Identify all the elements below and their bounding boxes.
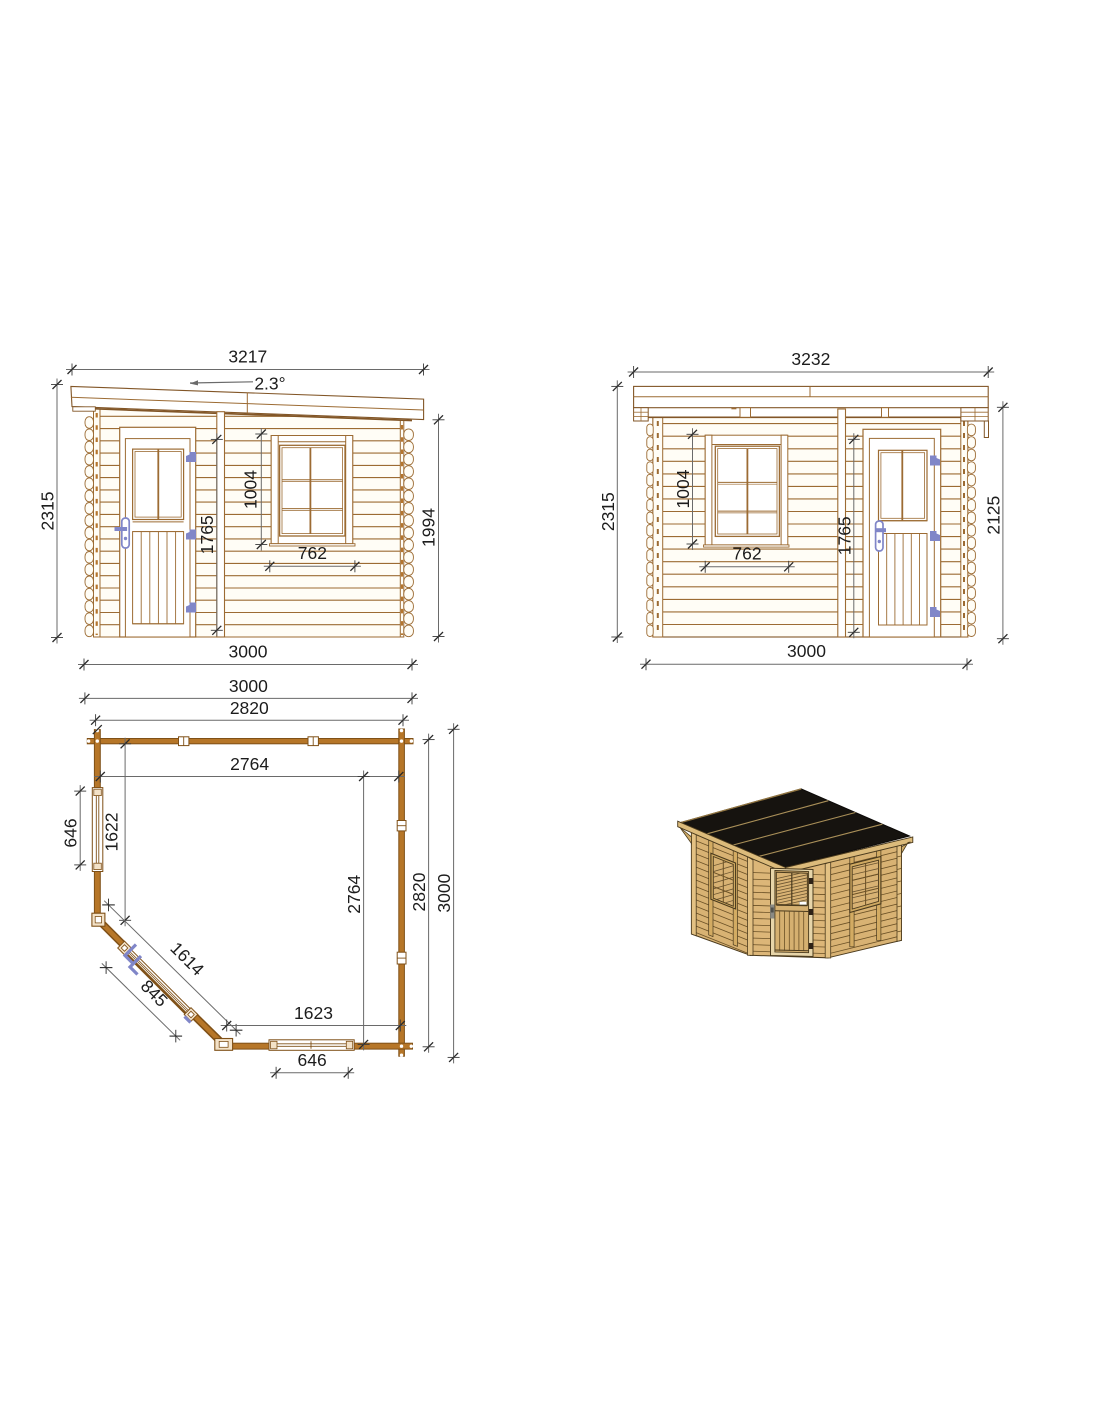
svg-text:3000: 3000	[229, 642, 268, 662]
svg-text:1622: 1622	[102, 813, 122, 852]
svg-text:2315: 2315	[38, 492, 58, 531]
svg-text:1765: 1765	[197, 515, 217, 554]
svg-text:3000: 3000	[229, 676, 268, 696]
svg-text:2764: 2764	[344, 875, 364, 914]
svg-text:1004: 1004	[673, 469, 693, 508]
svg-text:646: 646	[61, 818, 81, 847]
svg-text:3000: 3000	[434, 873, 454, 912]
svg-text:1994: 1994	[419, 508, 439, 547]
svg-text:2315: 2315	[598, 492, 618, 531]
svg-text:2820: 2820	[409, 872, 429, 911]
svg-text:2820: 2820	[230, 698, 269, 718]
svg-text:1623: 1623	[294, 1003, 333, 1023]
svg-text:646: 646	[297, 1050, 326, 1070]
svg-text:762: 762	[732, 544, 761, 564]
svg-text:3000: 3000	[787, 641, 826, 661]
svg-text:2.3°: 2.3°	[254, 374, 285, 394]
svg-text:2125: 2125	[984, 496, 1004, 535]
svg-text:1004: 1004	[241, 470, 261, 509]
svg-text:1765: 1765	[834, 516, 854, 555]
svg-text:3232: 3232	[791, 349, 830, 369]
svg-text:3217: 3217	[228, 347, 267, 367]
svg-text:2764: 2764	[230, 754, 269, 774]
svg-text:762: 762	[298, 543, 327, 563]
